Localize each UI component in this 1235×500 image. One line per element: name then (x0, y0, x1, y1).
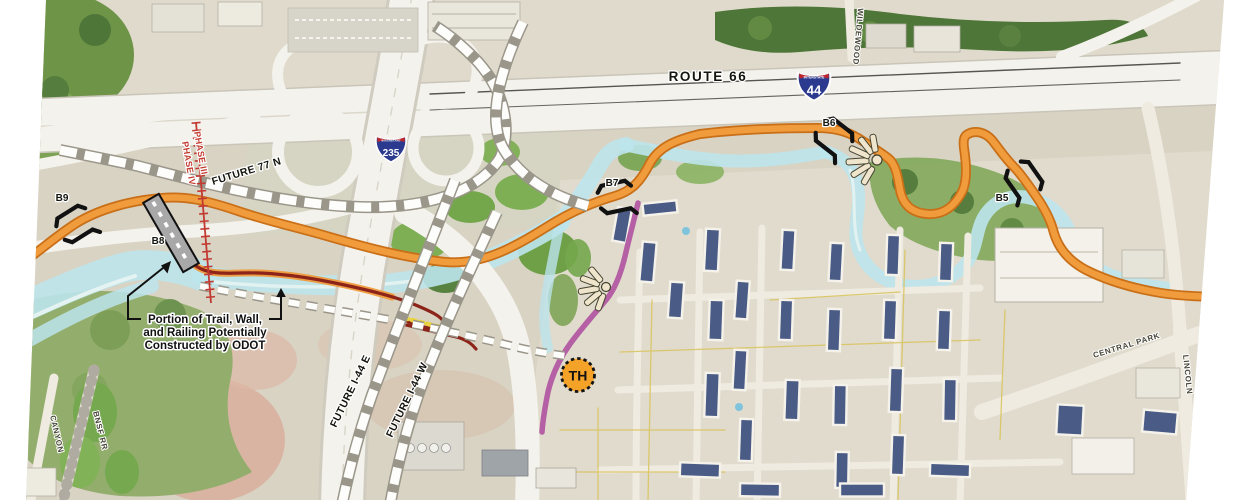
trailhead-marker: TH (562, 359, 595, 392)
pool (735, 403, 743, 411)
wildewood-street (849, 0, 852, 58)
trail-plan-map: TH INTERSTATE 44 INTERSTATE 235 ROUTE 66… (0, 0, 1235, 500)
bridge-b9-label: B9 (56, 193, 69, 204)
i235-number-label: 235 (383, 148, 400, 159)
annotation-line2: and Railing Potentially (143, 327, 267, 339)
trailhead-label: TH (569, 368, 588, 384)
i235-banner-label: INTERSTATE (382, 139, 401, 143)
route66-label: ROUTE 66 (669, 69, 748, 84)
pool (682, 227, 690, 235)
i44-number-label: 44 (807, 83, 822, 98)
i44-banner-label: INTERSTATE (804, 75, 826, 79)
bridge-b6-label: B6 (823, 118, 836, 129)
bridge-b5-label: B5 (996, 193, 1009, 204)
bridge-b7-label: B7 (606, 178, 619, 189)
annotation-line1: Portion of Trail, Wall, (148, 314, 262, 326)
aerial-map-canvas: TH INTERSTATE 44 INTERSTATE 235 ROUTE 66… (0, 0, 1235, 500)
annotation-line3: Constructed by ODOT (145, 340, 266, 352)
bridge-b8-label: B8 (152, 236, 165, 247)
